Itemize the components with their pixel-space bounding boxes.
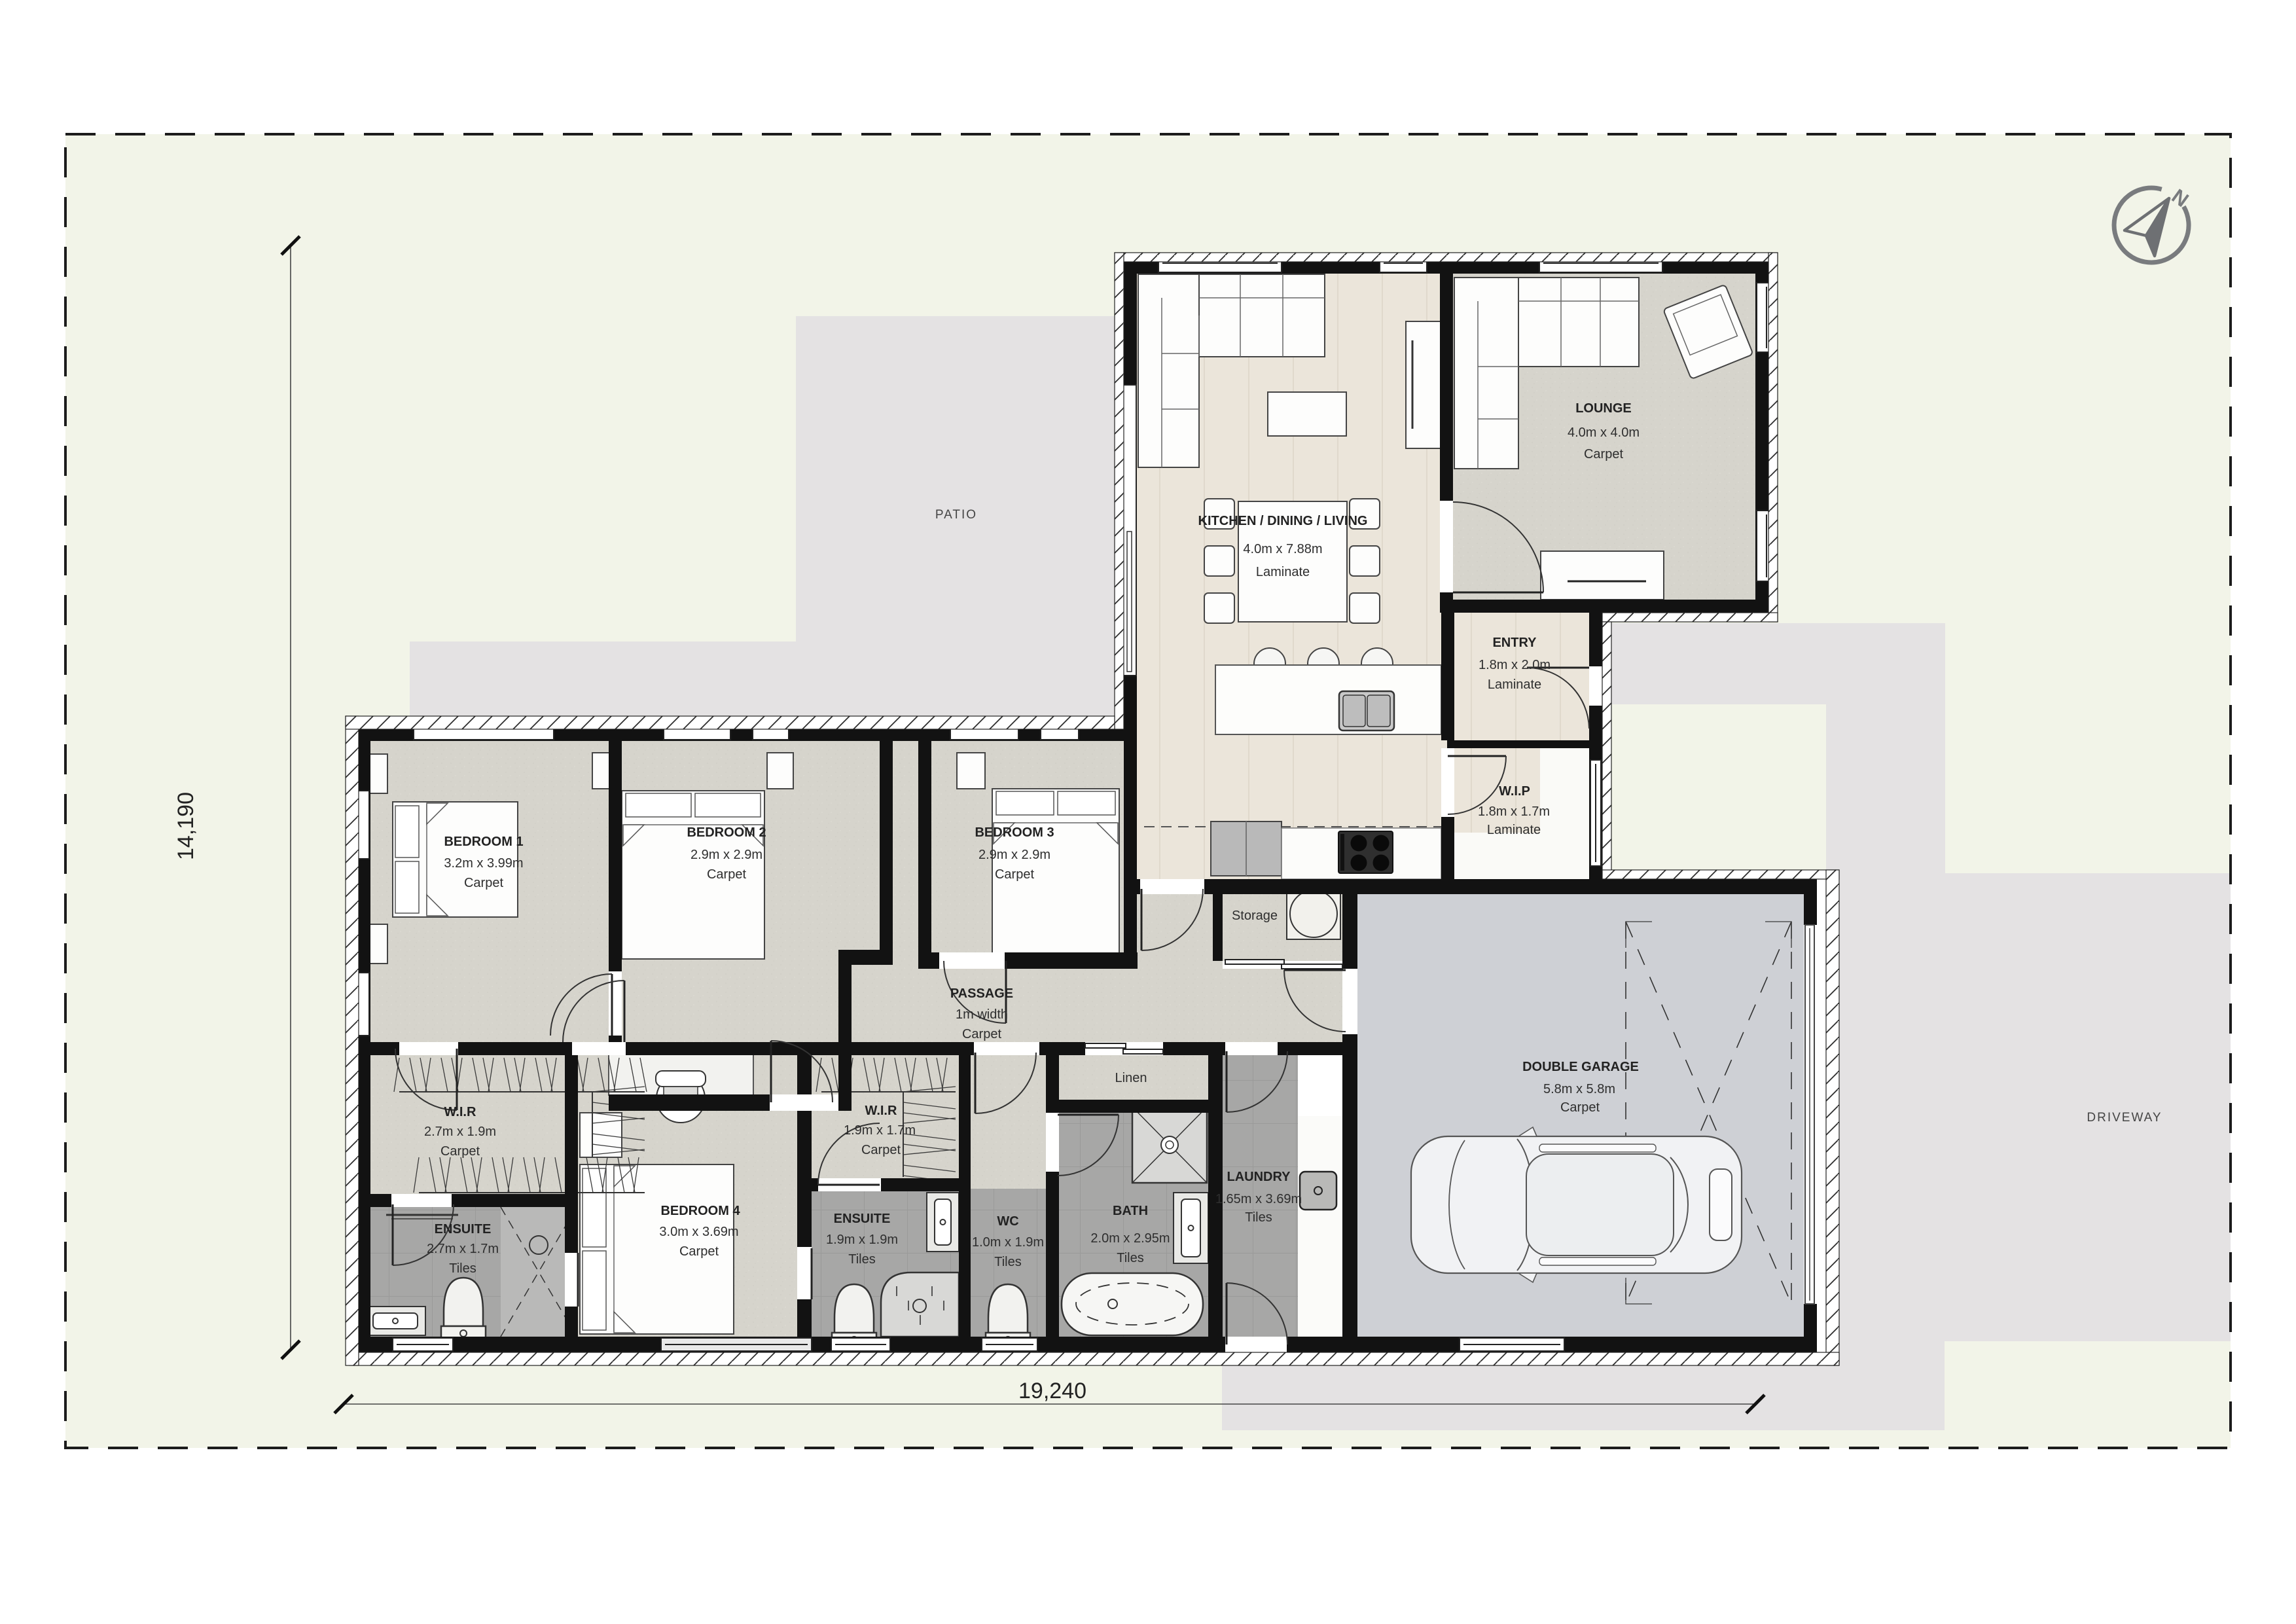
svg-text:ENSUITE: ENSUITE: [435, 1222, 492, 1236]
svg-text:5.8m x 5.8m: 5.8m x 5.8m: [1543, 1082, 1615, 1096]
svg-text:1.0m x 1.9m: 1.0m x 1.9m: [972, 1235, 1044, 1250]
svg-text:ENSUITE: ENSUITE: [834, 1212, 891, 1226]
svg-text:14,190: 14,190: [173, 792, 198, 860]
svg-text:Tiles: Tiles: [994, 1255, 1021, 1269]
svg-text:Tiles: Tiles: [449, 1261, 476, 1276]
svg-text:PASSAGE: PASSAGE: [950, 986, 1013, 1001]
svg-text:2.9m x 2.9m: 2.9m x 2.9m: [691, 848, 762, 862]
svg-text:PATIO: PATIO: [935, 508, 977, 522]
svg-text:BATH: BATH: [1113, 1204, 1148, 1218]
svg-text:19,240: 19,240: [1018, 1379, 1086, 1403]
svg-text:Linen: Linen: [1115, 1071, 1147, 1085]
svg-text:Carpet: Carpet: [861, 1143, 901, 1157]
svg-text:2.0m x 2.95m: 2.0m x 2.95m: [1090, 1231, 1170, 1246]
svg-text:Carpet: Carpet: [1584, 447, 1623, 461]
svg-text:KITCHEN / DINING / LIVING: KITCHEN / DINING / LIVING: [1198, 514, 1368, 528]
svg-text:Carpet: Carpet: [962, 1027, 1001, 1041]
svg-text:4.0m x 7.88m: 4.0m x 7.88m: [1243, 542, 1322, 556]
svg-text:BEDROOM 1: BEDROOM 1: [444, 835, 523, 849]
svg-text:BEDROOM 2: BEDROOM 2: [687, 825, 766, 840]
svg-text:1.8m x 2.0m: 1.8m x 2.0m: [1479, 658, 1551, 672]
svg-text:Carpet: Carpet: [440, 1144, 480, 1159]
svg-text:Carpet: Carpet: [995, 867, 1034, 882]
svg-text:W.I.R: W.I.R: [865, 1104, 897, 1118]
svg-text:Tiles: Tiles: [848, 1252, 875, 1267]
svg-text:Carpet: Carpet: [1560, 1100, 1600, 1115]
svg-text:DOUBLE GARAGE: DOUBLE GARAGE: [1522, 1060, 1639, 1074]
svg-text:W.I.P: W.I.P: [1499, 784, 1530, 799]
svg-text:Carpet: Carpet: [679, 1244, 719, 1259]
svg-text:2.9m x 2.9m: 2.9m x 2.9m: [978, 848, 1050, 862]
svg-text:Tiles: Tiles: [1245, 1210, 1272, 1225]
svg-text:WC: WC: [997, 1214, 1018, 1229]
svg-text:3.2m x 3.99m: 3.2m x 3.99m: [444, 856, 523, 871]
svg-text:Tiles: Tiles: [1117, 1251, 1143, 1265]
svg-text:BEDROOM 3: BEDROOM 3: [975, 825, 1054, 840]
svg-text:2.7m x 1.9m: 2.7m x 1.9m: [424, 1125, 496, 1139]
svg-text:ENTRY: ENTRY: [1492, 636, 1537, 650]
svg-text:W.I.R: W.I.R: [444, 1105, 476, 1119]
svg-text:Storage: Storage: [1232, 909, 1278, 923]
svg-text:1.8m x 1.7m: 1.8m x 1.7m: [1478, 804, 1550, 819]
svg-text:1m width: 1m width: [956, 1007, 1008, 1022]
svg-text:DRIVEWAY: DRIVEWAY: [2087, 1111, 2162, 1125]
svg-text:Carpet: Carpet: [464, 876, 503, 890]
svg-text:1.9m x 1.9m: 1.9m x 1.9m: [826, 1233, 898, 1247]
svg-text:Carpet: Carpet: [707, 867, 746, 882]
svg-text:BEDROOM 4: BEDROOM 4: [660, 1204, 740, 1218]
svg-text:LAUNDRY: LAUNDRY: [1227, 1170, 1291, 1184]
svg-text:1.9m x 1.7m: 1.9m x 1.7m: [844, 1123, 916, 1138]
svg-text:3.0m x 3.69m: 3.0m x 3.69m: [659, 1225, 738, 1239]
svg-text:Laminate: Laminate: [1256, 565, 1310, 579]
svg-text:LOUNGE: LOUNGE: [1575, 401, 1632, 416]
svg-text:Laminate: Laminate: [1487, 823, 1541, 837]
svg-text:1.65m x 3.69m: 1.65m x 3.69m: [1215, 1192, 1302, 1206]
svg-text:Laminate: Laminate: [1488, 677, 1541, 692]
svg-text:4.0m x 4.0m: 4.0m x 4.0m: [1568, 425, 1640, 440]
svg-text:2.7m x 1.7m: 2.7m x 1.7m: [427, 1242, 499, 1256]
